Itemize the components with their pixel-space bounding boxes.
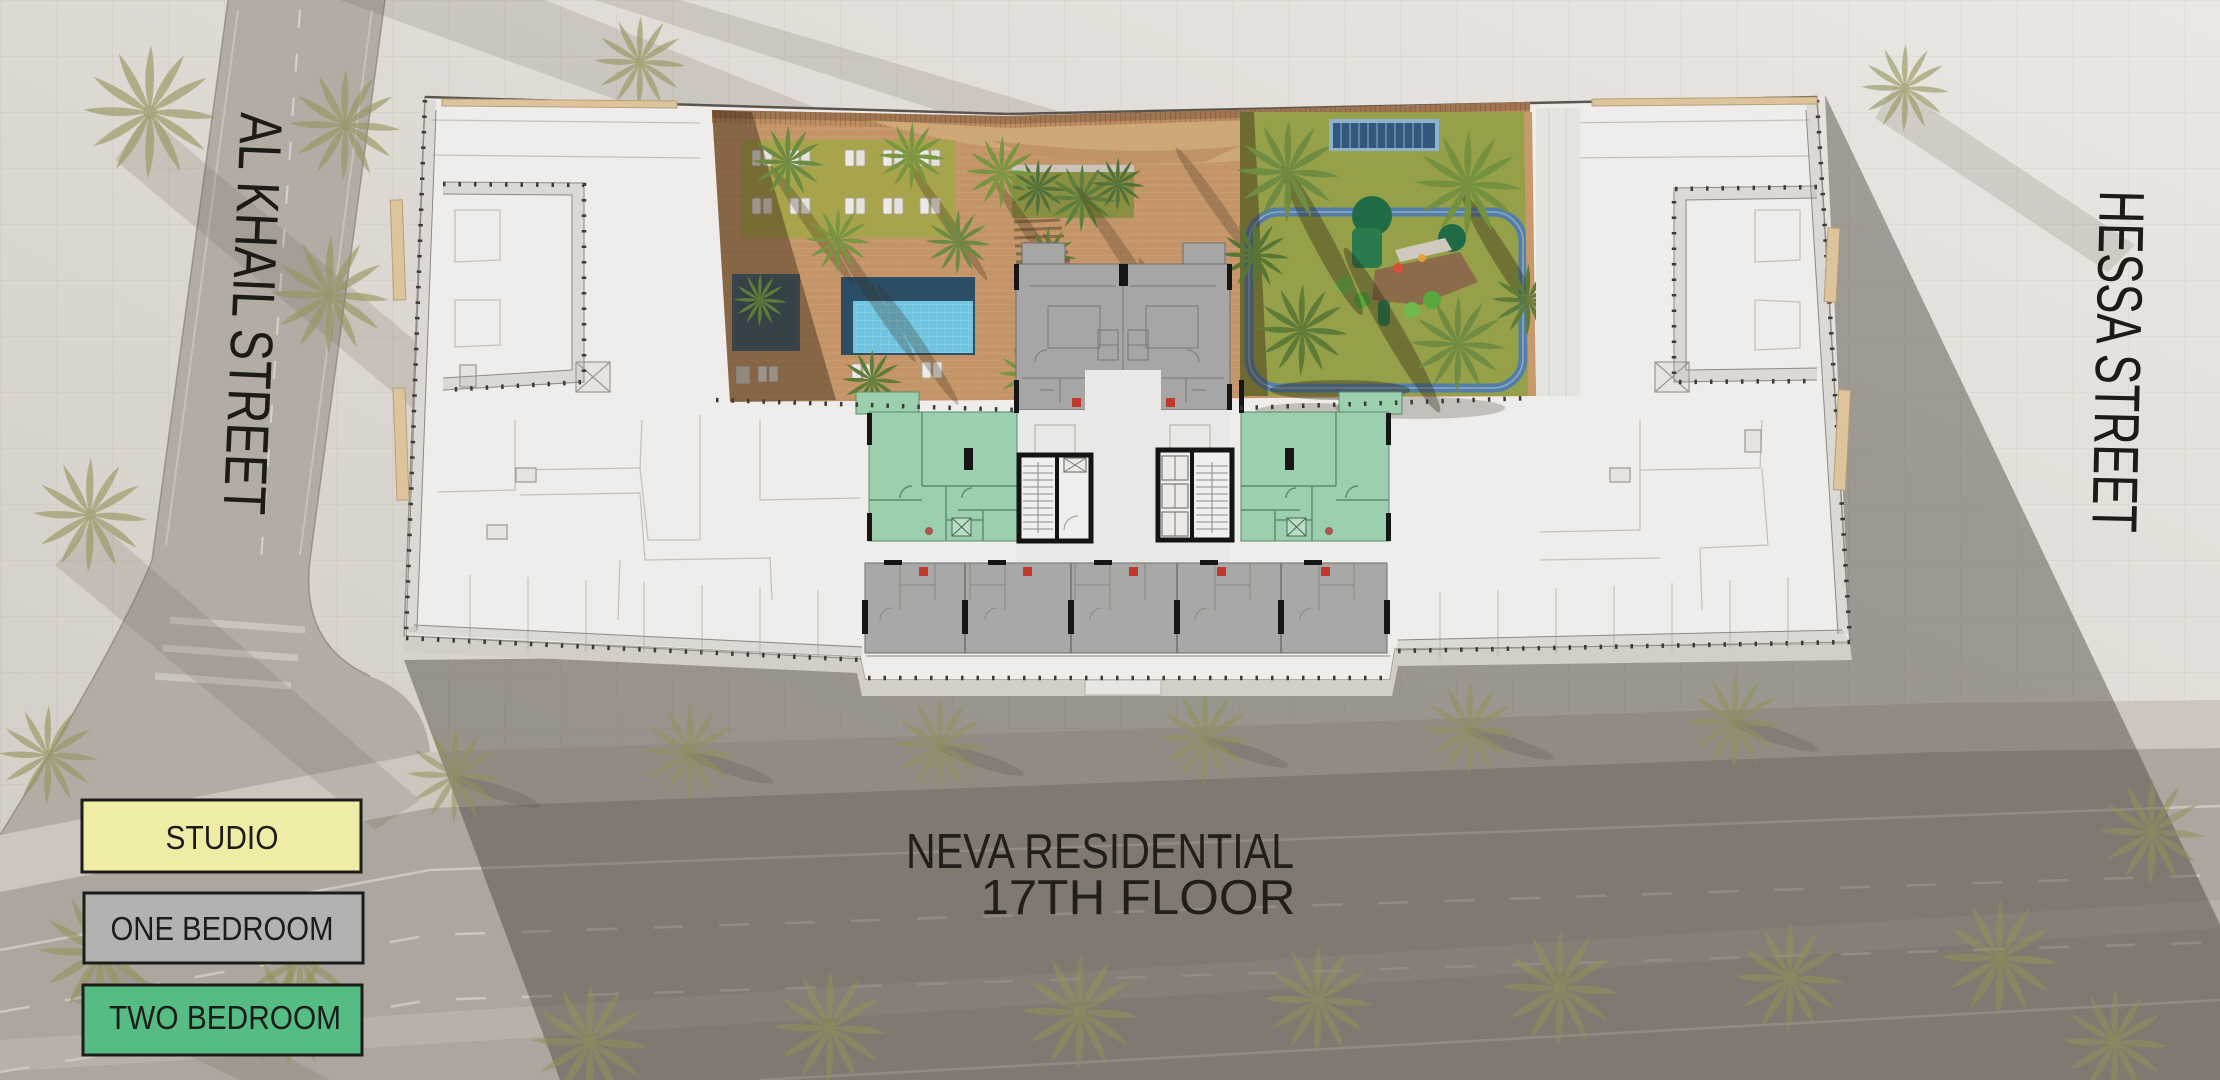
svg-text:TWO BEDROOM: TWO BEDROOM — [109, 999, 341, 1036]
svg-text:ONE BEDROOM: ONE BEDROOM — [111, 910, 334, 947]
svg-text:17TH FLOOR: 17TH FLOOR — [981, 871, 1296, 925]
svg-text:STUDIO: STUDIO — [166, 819, 279, 856]
svg-text:HESSA STREET: HESSA STREET — [2078, 190, 2158, 534]
